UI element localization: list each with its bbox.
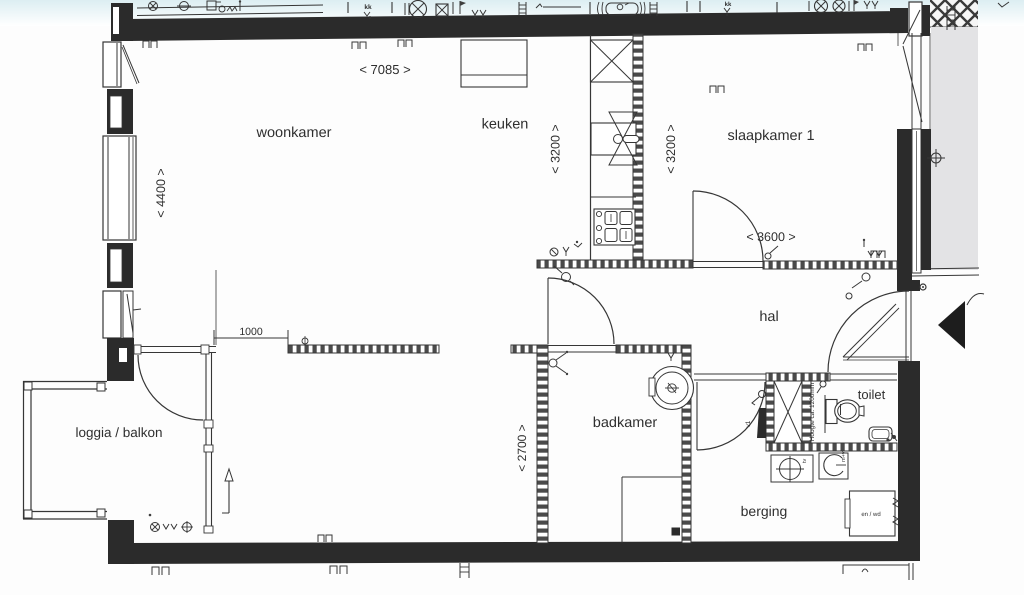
svg-text:tv: tv — [802, 458, 808, 463]
svg-text:m+v: m+v — [841, 451, 847, 462]
svg-text:kk: kk — [725, 1, 732, 8]
svg-text:slaapkamer 1: slaapkamer 1 — [727, 128, 814, 144]
svg-text:badkamer: badkamer — [593, 415, 658, 431]
svg-text:< 3200 >: < 3200 > — [664, 124, 678, 173]
svg-text:Hoogte ca. 1200mm: Hoogte ca. 1200mm — [809, 383, 816, 442]
svg-text:berging: berging — [741, 503, 788, 519]
svg-text:< 4400 >: < 4400 > — [154, 168, 168, 217]
svg-text:< 7085 >: < 7085 > — [359, 62, 410, 77]
svg-text:woonkamer: woonkamer — [256, 125, 332, 141]
svg-text:toilet: toilet — [858, 387, 886, 402]
svg-text:hal: hal — [759, 309, 778, 325]
svg-text:loggia / balkon: loggia / balkon — [75, 425, 162, 440]
svg-text:keuken: keuken — [482, 117, 529, 133]
svg-text:kk: kk — [364, 4, 372, 11]
svg-text:< 3200 >: < 3200 > — [549, 124, 563, 173]
svg-text:< 2700 >: < 2700 > — [515, 424, 529, 471]
svg-text:en / wd: en / wd — [861, 511, 880, 518]
svg-text:< 3600 >: < 3600 > — [746, 230, 795, 244]
svg-text:1000: 1000 — [239, 326, 263, 338]
svg-text:v1: v1 — [745, 420, 752, 427]
